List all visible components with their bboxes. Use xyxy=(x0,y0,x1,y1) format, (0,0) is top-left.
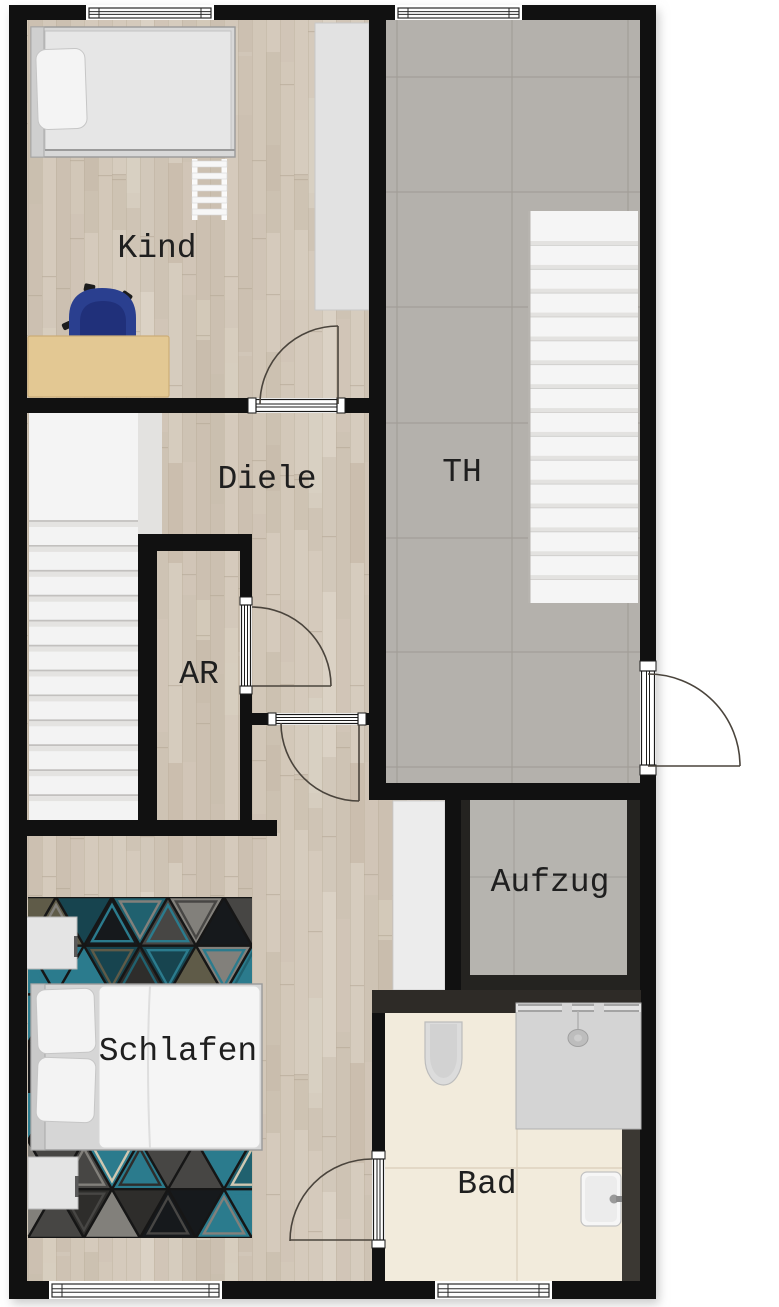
svg-text:Aufzug: Aufzug xyxy=(491,864,610,901)
svg-text:Diele: Diele xyxy=(217,461,316,498)
svg-text:AR: AR xyxy=(179,656,219,693)
svg-text:Bad: Bad xyxy=(457,1166,516,1203)
svg-text:Schlafen: Schlafen xyxy=(99,1033,257,1070)
svg-text:TH: TH xyxy=(442,454,482,491)
svg-text:Kind: Kind xyxy=(117,230,196,267)
